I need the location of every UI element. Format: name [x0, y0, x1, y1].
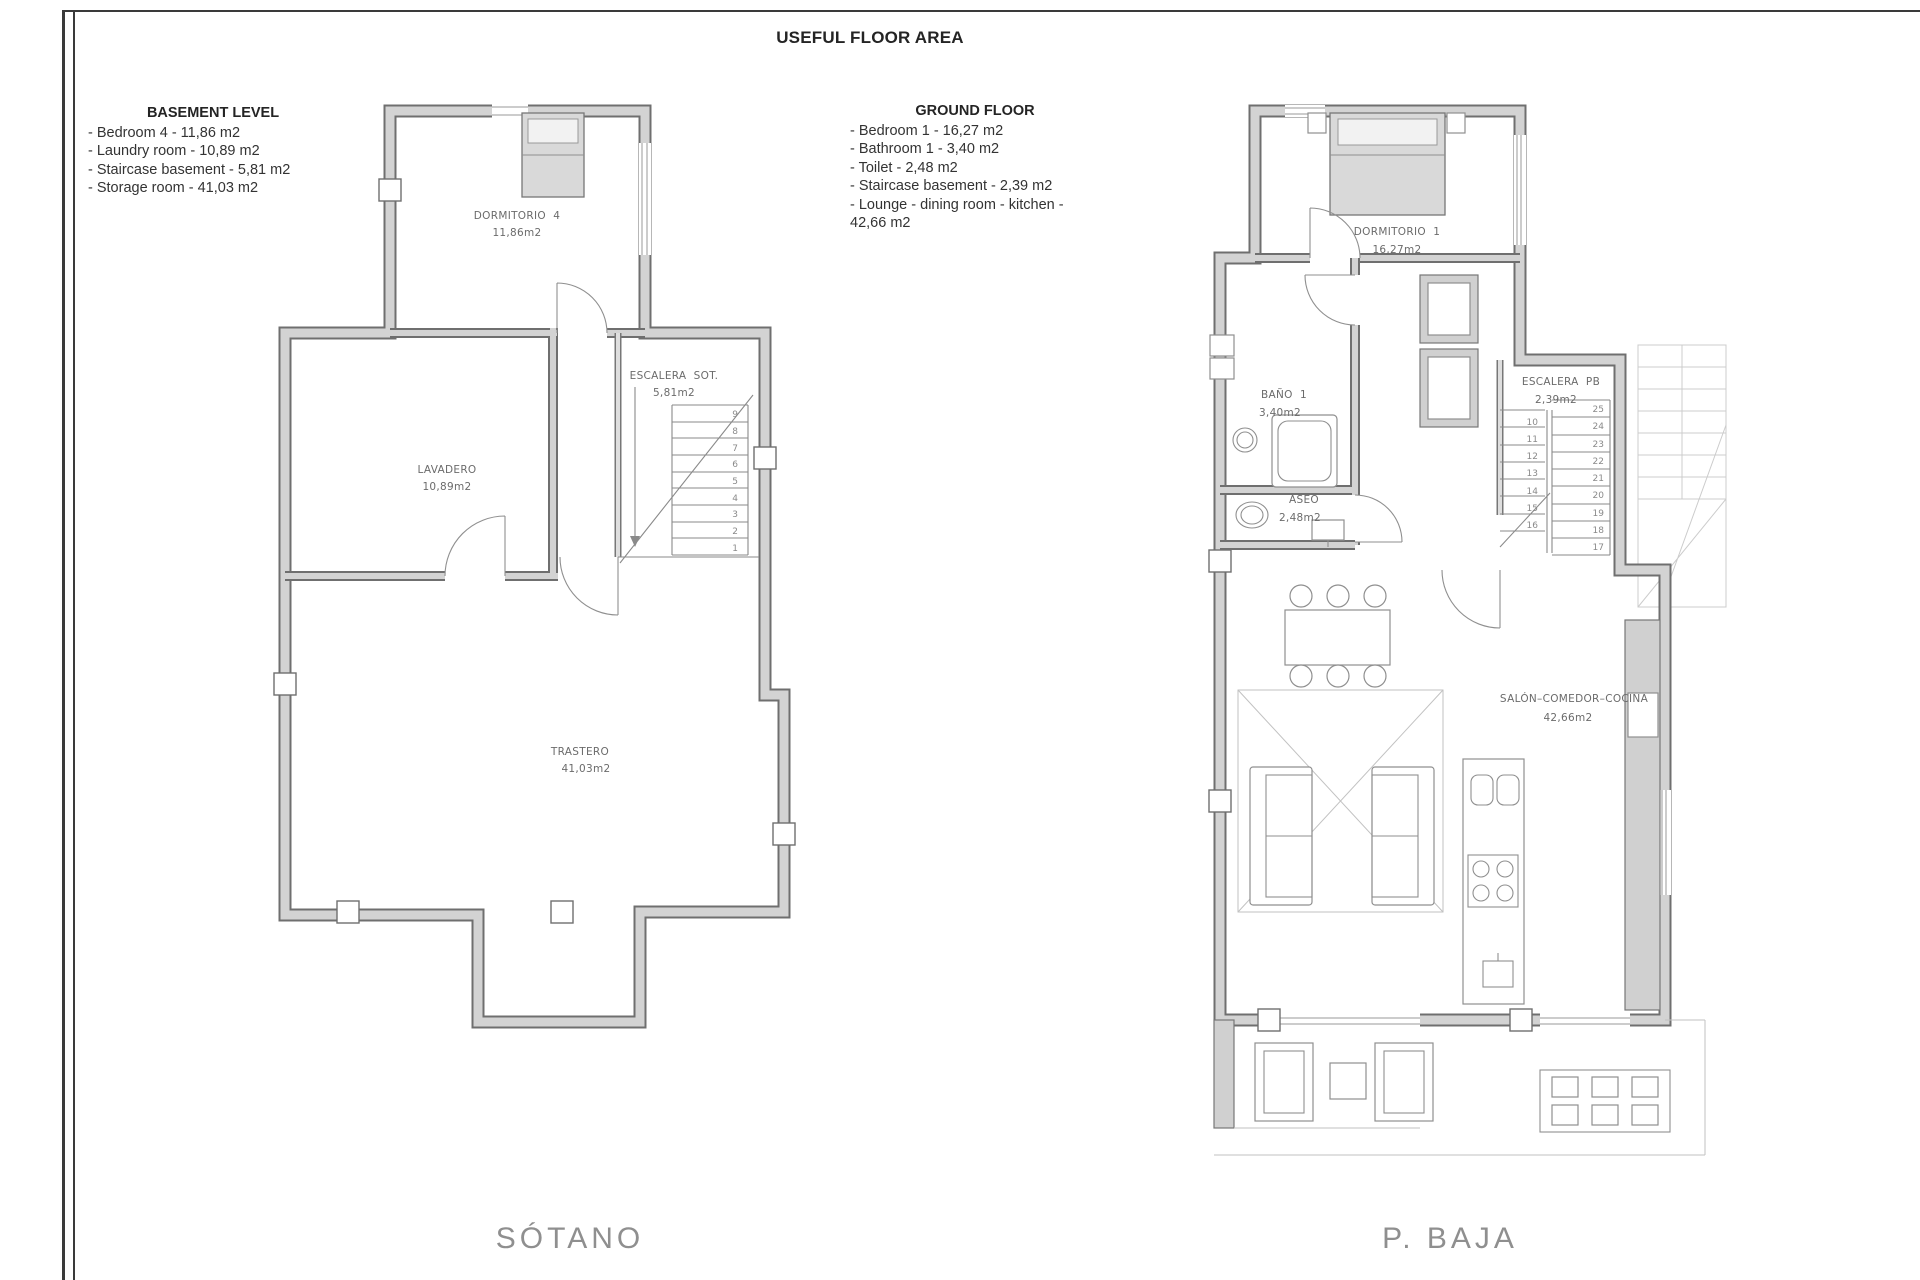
frame-left-outer-line: [62, 10, 65, 1280]
legend-ground-heading: GROUND FLOOR: [850, 102, 1100, 121]
sotano-staircase: 9 8 7 6 5 4 3 2 1: [620, 387, 753, 563]
stair-number: 15: [1527, 504, 1538, 514]
pbaja-kitchen-island: [1463, 759, 1524, 1004]
room-label-trastero: TRASTERO: [550, 746, 609, 758]
stair-number: 2: [732, 527, 738, 537]
stair-number: 7: [732, 444, 738, 454]
stair-number: 25: [1593, 405, 1604, 415]
pbaja-lounge-area: [1238, 690, 1443, 912]
room-area-trastero: 41,03m2: [561, 763, 610, 775]
pbaja-terrace: [1214, 1020, 1705, 1155]
sotano-interior-walls: [285, 328, 759, 576]
stair-number: 19: [1593, 509, 1605, 519]
room-label-salon: SALÓN–COMEDOR–COCINA: [1500, 692, 1649, 705]
room-area-dormitorio4: 11,86m2: [492, 227, 541, 239]
stair-number: 23: [1593, 440, 1604, 450]
pbaja-dining-set: [1285, 585, 1390, 687]
legend-ground-item: - Lounge - dining room - kitchen - 42,66…: [850, 196, 1100, 233]
legend-ground-item: - Staircase basement - 2,39 m2: [850, 177, 1100, 196]
stair-number: 12: [1527, 452, 1538, 462]
stair-number: 13: [1527, 469, 1538, 479]
plan-name-pbaja: P. BAJA: [1340, 1222, 1560, 1256]
sotano-pillars: [274, 179, 795, 923]
stair-number: 3: [732, 510, 738, 520]
stair-number: 1: [732, 544, 738, 554]
stair-number: 6: [732, 460, 738, 470]
room-label-dormitorio1: DORMITORIO 1: [1354, 226, 1440, 238]
room-label-escalera-pb: ESCALERA PB: [1522, 376, 1600, 388]
pbaja-bed: [1308, 113, 1465, 215]
frame-top-line: [62, 10, 1920, 12]
stair-number: 21: [1593, 474, 1604, 484]
room-label-bano: BAÑO 1: [1261, 388, 1307, 401]
floorplan-pbaja: 10 11 12 13 14 15 16 25 24 23 22 21 20 1…: [1200, 95, 1730, 1180]
pbaja-kitchen-counter: [1625, 620, 1660, 1010]
plan-name-sotano: SÓTANO: [460, 1222, 680, 1256]
room-label-aseo: ASEO: [1289, 494, 1319, 506]
room-area-escalera-pb: 2,39m2: [1535, 394, 1577, 406]
drawing-sheet: USEFUL FLOOR AREA BASEMENT LEVEL - Bedro…: [0, 0, 1920, 1280]
stair-number: 11: [1527, 435, 1538, 445]
room-label-dormitorio4: DORMITORIO 4: [474, 210, 560, 222]
stair-number: 5: [732, 477, 738, 487]
stair-number: 10: [1527, 418, 1539, 428]
legend-ground-item: - Bathroom 1 - 3,40 m2: [850, 140, 1100, 159]
stair-number: 14: [1527, 487, 1539, 497]
stair-number: 4: [732, 494, 738, 504]
page-title: USEFUL FLOOR AREA: [740, 28, 1000, 48]
room-area-escalera-sot: 5,81m2: [653, 387, 695, 399]
sotano-bed: [522, 113, 584, 197]
legend-ground-item: - Toilet - 2,48 m2: [850, 159, 1100, 178]
room-area-salon: 42,66m2: [1543, 712, 1592, 724]
room-area-aseo: 2,48m2: [1279, 512, 1321, 524]
room-area-lavadero: 10,89m2: [422, 481, 471, 493]
stair-number: 8: [732, 427, 738, 437]
floorplan-sotano: 9 8 7 6 5 4 3 2 1 DORMITORIO 4 11,86m2 E…: [270, 95, 800, 1045]
room-area-bano: 3,40m2: [1259, 407, 1301, 419]
stair-number: 9: [732, 410, 738, 420]
legend-ground-item: - Bedroom 1 - 16,27 m2: [850, 122, 1100, 141]
room-area-dormitorio1: 16,27m2: [1372, 244, 1421, 256]
pbaja-closets: [1420, 275, 1478, 427]
stair-number: 16: [1527, 521, 1539, 531]
room-label-escalera-sot: ESCALERA SOT.: [630, 370, 719, 382]
frame-left-inner-line: [73, 10, 75, 1280]
stair-number: 22: [1593, 457, 1604, 467]
legend-ground: GROUND FLOOR - Bedroom 1 - 16,27 m2 - Ba…: [850, 102, 1100, 233]
stair-number: 24: [1593, 422, 1605, 432]
stair-number: 18: [1593, 526, 1605, 536]
sotano-outer-walls: [285, 111, 784, 1022]
sotano-room-labels: DORMITORIO 4 11,86m2 ESCALERA SOT. 5,81m…: [418, 210, 719, 775]
stair-number: 17: [1593, 543, 1604, 553]
pbaja-staircase: 10 11 12 13 14 15 16 25 24 23 22 21 20 1…: [1500, 400, 1610, 555]
stair-number: 20: [1593, 491, 1605, 501]
room-label-lavadero: LAVADERO: [418, 464, 477, 476]
stair-arrow-head: [630, 536, 640, 547]
